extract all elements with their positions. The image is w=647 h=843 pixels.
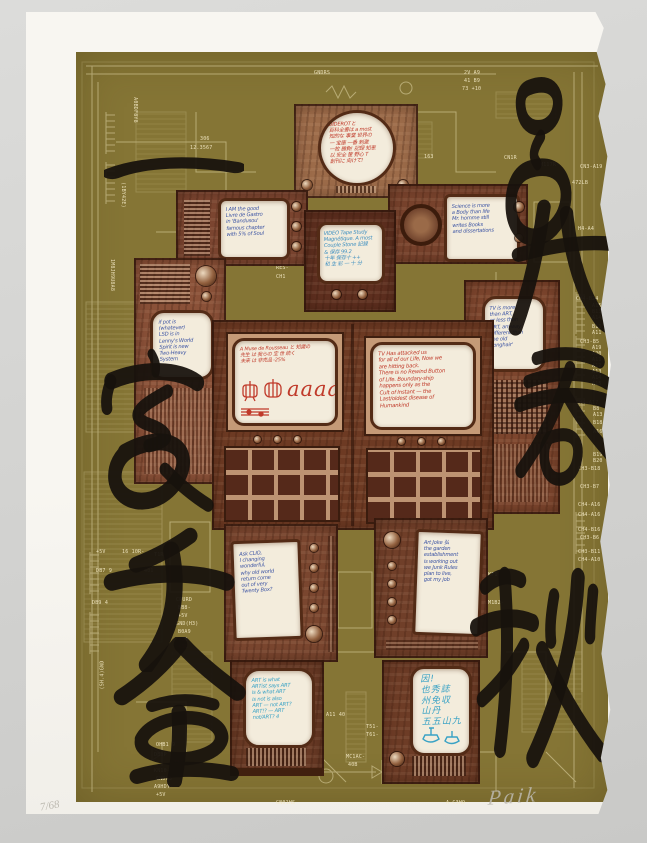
- speaker-grille: [184, 200, 210, 256]
- head-screen: DIDEROTと 百科全書は a most 知的な 事業 世界の 一 宝庫 一番…: [318, 110, 396, 186]
- schematic-label: 2V A9: [464, 70, 480, 76]
- knob: [202, 292, 211, 301]
- right-foot-screen: 因! 也秀誌 州免収 山丹 五五山九: [410, 666, 472, 756]
- knob: [254, 436, 261, 443]
- schematic-label: CH3-B6: [580, 535, 599, 541]
- knob: [388, 580, 396, 588]
- schematic-label: GN01HS: [276, 800, 295, 806]
- right-foot-note: 因! 也秀誌 州免収 山丹 五五山九: [412, 668, 470, 729]
- knob: [294, 436, 301, 443]
- left-shoulder-screen: I AM the good Livre de Gastro in 'Bandus…: [218, 198, 290, 260]
- knob: [358, 290, 367, 299]
- knob: [310, 564, 318, 572]
- knob: [306, 626, 322, 642]
- speaker-button-grid: [368, 450, 480, 522]
- schematic-label: GNDRS: [314, 70, 330, 76]
- knob: [196, 266, 216, 286]
- calligraphy-char-shi: [496, 194, 646, 354]
- torso-cabinet: A Muse de Rousseau と 知識の 先生 は 我らの 宝 世 続く…: [212, 320, 494, 530]
- paper-sheet: GNDRS30612.35672V A941 B973 +10163CN1RM1…: [26, 12, 618, 814]
- print-area: GNDRS30612.35672V A941 B973 +10163CN1RM1…: [76, 52, 608, 802]
- schematic-label: T61-: [366, 732, 379, 738]
- knob: [388, 598, 396, 606]
- schematic-label: MC1AC-: [346, 754, 365, 760]
- chest-screen: VIDEO Tape Study Magnétique. A most Coup…: [317, 222, 385, 284]
- cabinet-seam: [351, 324, 354, 526]
- speaker-grille: [412, 756, 466, 776]
- knob: [302, 180, 312, 190]
- torso-left-tv-frame: A Muse de Rousseau と 知識の 先生 は 我らの 宝 世 続く…: [228, 334, 342, 430]
- left-foot-note: ART is what ARTist says ART is & what AR…: [245, 670, 313, 722]
- schematic-label: 163: [424, 154, 434, 160]
- schematic-label: CH4-A16: [578, 512, 600, 518]
- schematic-label: 40B: [348, 762, 358, 768]
- artist-signature: Paik: [487, 782, 540, 811]
- calligraphy-char-jia: [84, 347, 219, 517]
- left-leg-note: Ask CLIO, I changing wonderful, why old …: [233, 541, 300, 596]
- torso-left-screen: A Muse de Rousseau と 知識の 先生 は 我らの 宝 世 続く…: [232, 338, 338, 426]
- cyan-boat-doodles: [421, 725, 463, 749]
- knob: [388, 562, 396, 570]
- round-speaker: [400, 204, 442, 246]
- head-grille: [336, 186, 376, 193]
- schematic-label: CH4-B16: [578, 527, 600, 533]
- speaker-grille: [246, 748, 306, 766]
- knob: [292, 222, 301, 231]
- schematic-label: CH3-B11: [578, 549, 600, 555]
- calligraphy-char-qiu: [464, 560, 614, 785]
- knob: [438, 438, 445, 445]
- calligraphy-char-yi: [104, 130, 244, 205]
- knob: [388, 616, 396, 624]
- torso-right-screen: TV Has attacked us for all of our Life, …: [370, 342, 476, 430]
- schematic-label: T51-: [366, 724, 379, 730]
- speaker-grille: [140, 264, 190, 304]
- head-note: DIDEROTと 百科全書は a most 知的な 事業 世界の 一 宝庫 一番…: [320, 112, 394, 166]
- knob: [310, 604, 318, 612]
- knob: [274, 436, 281, 443]
- knob: [292, 242, 301, 251]
- torso-left-note: A Muse de Rousseau と 知識の 先生 は 我らの 宝 世 続く…: [235, 339, 336, 364]
- schematic-label: +5V: [156, 792, 166, 798]
- schematic-label: A11 40: [326, 712, 345, 718]
- knob: [418, 438, 425, 445]
- chest-tv: VIDEO Tape Study Magnétique. A most Coup…: [304, 210, 396, 312]
- calligraphy-char-chun: [504, 342, 624, 507]
- schematic-label: 1M8JH9U8A8: [109, 259, 115, 291]
- torso-left-letters: aaaa: [287, 379, 338, 400]
- edition-number: 7/68: [39, 798, 60, 813]
- left-shoulder-note: I AM the good Livre de Gastro in 'Bandus…: [220, 200, 287, 238]
- knob: [310, 584, 318, 592]
- calligraphy-char-jin: [104, 637, 254, 787]
- artwork-photo: GNDRS30612.35672V A941 B973 +10163CN1RM1…: [0, 0, 647, 843]
- chest-note: VIDEO Tape Study Magnétique. A most Coup…: [319, 224, 382, 269]
- knob: [390, 752, 404, 766]
- knob: [310, 544, 318, 552]
- torso-right-note: TV Has attacked us for all of our Life, …: [372, 343, 474, 410]
- side-grille: [328, 536, 334, 652]
- schematic-label: 73 +10: [462, 86, 481, 92]
- schematic-label: CH1: [276, 274, 286, 280]
- left-leg-note-panel: Ask CLIO, I changing wonderful, why old …: [230, 539, 303, 641]
- speaker-button-grid: [226, 448, 338, 520]
- schematic-label: 41 B9: [464, 78, 480, 84]
- schematic-label: A-C3H9: [446, 800, 465, 806]
- knob: [398, 438, 405, 445]
- knob: [292, 202, 301, 211]
- red-sketch-lanterns: [239, 373, 287, 419]
- schematic-label: A0BDF8Y8: [132, 97, 138, 123]
- torso-right-tv-frame: TV Has attacked us for all of our Life, …: [366, 338, 480, 434]
- knob: [384, 532, 400, 548]
- knob: [332, 290, 341, 299]
